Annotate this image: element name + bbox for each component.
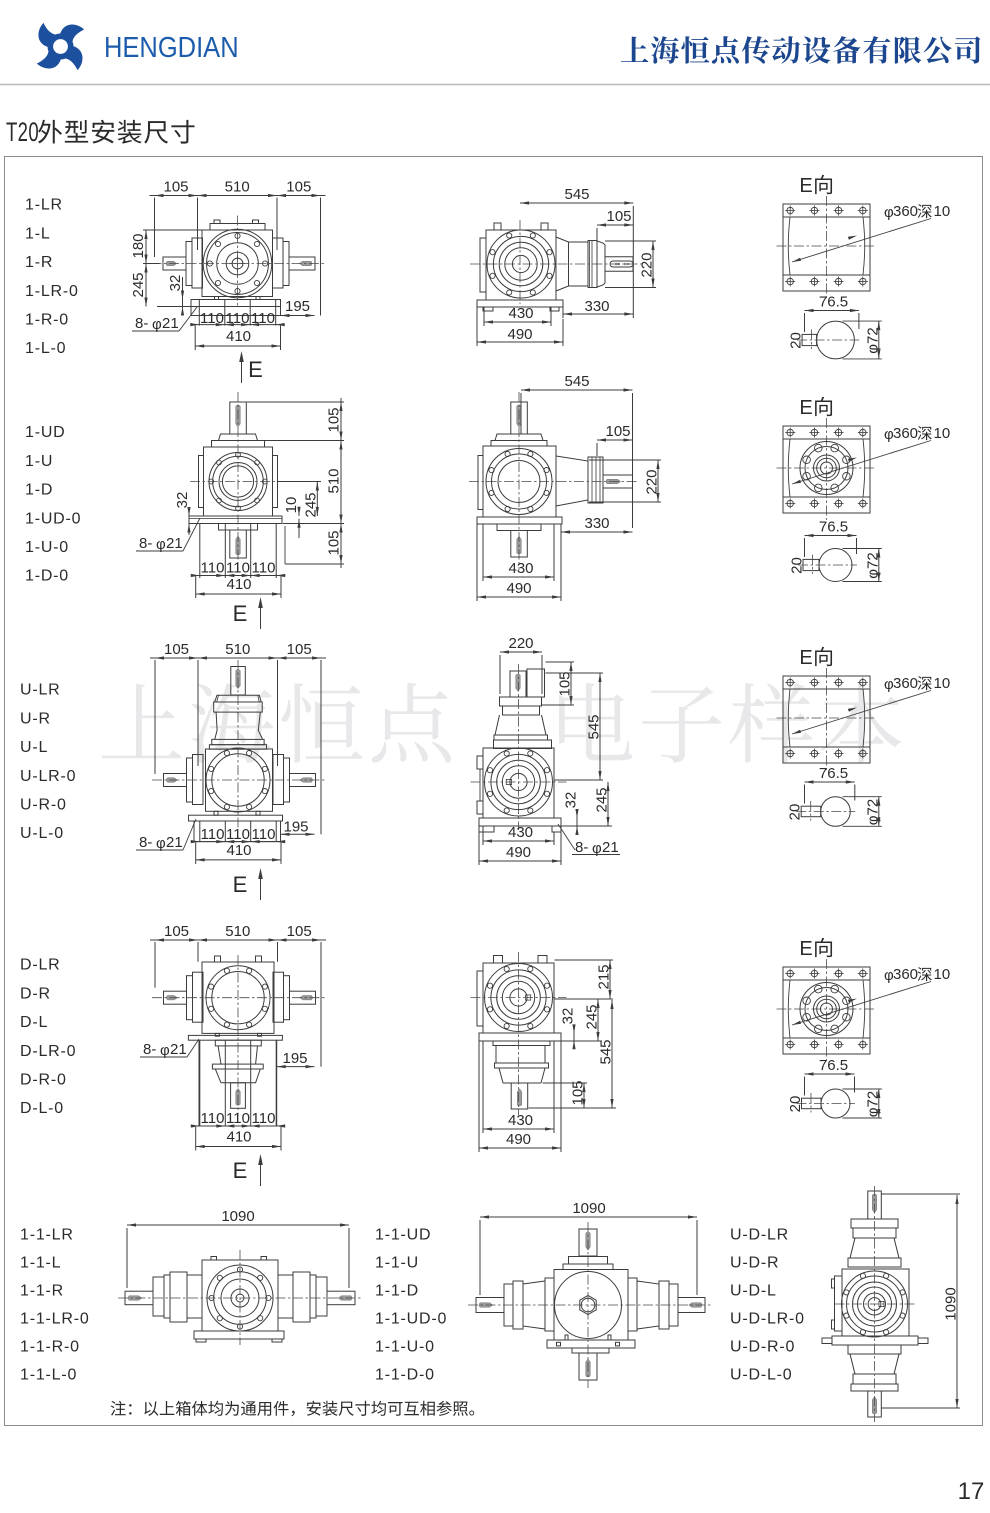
svg-text:410: 410 xyxy=(226,1129,251,1146)
svg-text:105: 105 xyxy=(326,407,343,432)
svg-text:20: 20 xyxy=(788,332,805,349)
svg-text:8-: 8- xyxy=(575,839,588,856)
svg-text:20: 20 xyxy=(789,557,806,574)
svg-text:360: 360 xyxy=(893,425,918,442)
svg-text:U-L-0: U-L-0 xyxy=(20,825,64,842)
svg-text:510: 510 xyxy=(225,179,250,196)
svg-text:D-L-0: D-L-0 xyxy=(20,1100,64,1117)
svg-text:105: 105 xyxy=(163,179,188,196)
svg-text:1-1-R: 1-1-R xyxy=(20,1283,64,1300)
svg-text:D-R: D-R xyxy=(20,986,51,1003)
svg-text:1090: 1090 xyxy=(572,1200,605,1217)
svg-text:110: 110 xyxy=(201,1110,225,1127)
svg-text:1-LR-0: 1-LR-0 xyxy=(25,283,79,300)
svg-text:105: 105 xyxy=(286,179,311,196)
svg-text:180: 180 xyxy=(130,233,147,258)
svg-text:21: 21 xyxy=(162,315,179,332)
svg-text:D-L: D-L xyxy=(20,1014,48,1031)
svg-text:410: 410 xyxy=(226,842,251,859)
svg-text:1090: 1090 xyxy=(221,1208,254,1225)
svg-text:E: E xyxy=(233,1158,248,1183)
svg-text:E: E xyxy=(799,175,812,197)
svg-text:545: 545 xyxy=(564,373,589,390)
svg-text:1-L-0: 1-L-0 xyxy=(25,340,66,357)
svg-text:490: 490 xyxy=(506,844,531,861)
svg-text:330: 330 xyxy=(584,515,609,532)
svg-text:21: 21 xyxy=(166,834,183,851)
svg-text:8-: 8- xyxy=(135,315,148,332)
svg-text:U-D-LR: U-D-LR xyxy=(730,1227,789,1244)
svg-text:1-1-LR-0: 1-1-LR-0 xyxy=(20,1311,90,1328)
svg-text:10: 10 xyxy=(934,675,951,692)
svg-text:E: E xyxy=(799,938,812,960)
svg-text:245: 245 xyxy=(303,492,320,517)
svg-text:U-D-L: U-D-L xyxy=(730,1283,777,1300)
svg-text:E: E xyxy=(799,647,812,669)
svg-text:21: 21 xyxy=(170,1041,187,1058)
svg-text:110: 110 xyxy=(252,826,276,843)
svg-text:U-LR: U-LR xyxy=(20,682,61,699)
svg-text:105: 105 xyxy=(326,530,343,555)
svg-text:32: 32 xyxy=(563,792,580,809)
svg-text:8-: 8- xyxy=(139,535,152,552)
svg-text:1-1-L: 1-1-L xyxy=(20,1255,61,1272)
svg-text:1-1-D-0: 1-1-D-0 xyxy=(375,1367,435,1384)
svg-text:490: 490 xyxy=(507,326,532,343)
svg-text:490: 490 xyxy=(506,580,531,597)
svg-text:1-U: 1-U xyxy=(25,453,53,470)
svg-text:E: E xyxy=(233,872,248,897)
svg-text:110: 110 xyxy=(252,560,276,577)
svg-text:D-LR-0: D-LR-0 xyxy=(20,1043,76,1060)
svg-text:245: 245 xyxy=(130,272,147,297)
svg-text:490: 490 xyxy=(506,1131,531,1148)
svg-text:510: 510 xyxy=(225,641,250,658)
svg-text:U-R-0: U-R-0 xyxy=(20,797,67,814)
svg-text:10: 10 xyxy=(934,203,951,220)
svg-text:110: 110 xyxy=(201,826,225,843)
svg-text:195: 195 xyxy=(282,1050,307,1067)
svg-text:20: 20 xyxy=(787,804,804,821)
svg-text:E: E xyxy=(248,357,263,382)
svg-text:φ: φ xyxy=(156,536,166,553)
svg-text:10: 10 xyxy=(934,966,951,983)
svg-text:1-D-0: 1-D-0 xyxy=(25,568,69,585)
svg-text:1-R: 1-R xyxy=(25,254,53,271)
svg-text:76.5: 76.5 xyxy=(819,765,848,782)
svg-text:430: 430 xyxy=(508,824,533,841)
svg-text:8-: 8- xyxy=(139,834,152,851)
svg-text:U-LR-0: U-LR-0 xyxy=(20,768,76,785)
svg-text:D-R-0: D-R-0 xyxy=(20,1072,67,1089)
svg-text:76.5: 76.5 xyxy=(819,1057,848,1074)
svg-text:1-LR: 1-LR xyxy=(25,197,63,214)
svg-text:410: 410 xyxy=(226,328,251,345)
svg-text:105: 105 xyxy=(606,208,631,225)
svg-text:21: 21 xyxy=(602,839,619,856)
svg-text:1-U-0: 1-U-0 xyxy=(25,539,69,556)
svg-text:105: 105 xyxy=(287,923,312,940)
svg-text:20: 20 xyxy=(787,1096,804,1113)
svg-text:1-UD: 1-UD xyxy=(25,424,66,441)
svg-text:1-1-UD: 1-1-UD xyxy=(375,1227,431,1244)
svg-text:U-D-R-0: U-D-R-0 xyxy=(730,1339,795,1356)
svg-text:195: 195 xyxy=(285,298,310,315)
svg-text:105: 105 xyxy=(164,923,189,940)
svg-text:D-LR: D-LR xyxy=(20,957,61,974)
svg-text:E: E xyxy=(799,397,812,419)
svg-text:10: 10 xyxy=(934,425,951,442)
svg-text:330: 330 xyxy=(584,298,609,315)
svg-text:1-R-0: 1-R-0 xyxy=(25,312,69,329)
svg-text:32: 32 xyxy=(167,275,184,292)
svg-text:105: 105 xyxy=(605,423,630,440)
svg-text:430: 430 xyxy=(508,560,533,577)
svg-text:110: 110 xyxy=(226,826,250,843)
svg-text:8-: 8- xyxy=(143,1041,156,1058)
svg-text:430: 430 xyxy=(508,1112,533,1129)
svg-text:U-D-R: U-D-R xyxy=(730,1255,779,1272)
svg-text:105: 105 xyxy=(164,641,189,658)
svg-text:1-L: 1-L xyxy=(25,226,51,243)
svg-text:21: 21 xyxy=(166,535,183,552)
svg-text:360: 360 xyxy=(893,203,918,220)
svg-text:110: 110 xyxy=(226,560,250,577)
svg-text:1-1-D: 1-1-D xyxy=(375,1283,419,1300)
svg-text:U-R: U-R xyxy=(20,711,51,728)
svg-text:1-1-LR: 1-1-LR xyxy=(20,1227,74,1244)
svg-text:110: 110 xyxy=(201,560,225,577)
svg-text:32: 32 xyxy=(174,492,191,509)
svg-text:76.5: 76.5 xyxy=(819,518,848,535)
svg-text:U-D-LR-0: U-D-LR-0 xyxy=(730,1311,805,1328)
svg-text:φ: φ xyxy=(160,1042,170,1059)
svg-text:1-1-L-0: 1-1-L-0 xyxy=(20,1367,77,1384)
svg-text:U-D-L-0: U-D-L-0 xyxy=(730,1367,793,1384)
svg-text:510: 510 xyxy=(326,468,343,493)
svg-text:1-1-U: 1-1-U xyxy=(375,1255,419,1272)
svg-text:110: 110 xyxy=(252,1110,276,1127)
svg-text:1-1-U-0: 1-1-U-0 xyxy=(375,1339,435,1356)
svg-text:φ: φ xyxy=(152,316,162,333)
svg-text:510: 510 xyxy=(225,923,250,940)
svg-text:32: 32 xyxy=(560,1008,577,1025)
svg-text:1-UD-0: 1-UD-0 xyxy=(25,511,81,528)
svg-text:110: 110 xyxy=(226,1110,250,1127)
svg-text:410: 410 xyxy=(226,576,251,593)
svg-text:195: 195 xyxy=(283,819,308,836)
svg-text:1-1-UD-0: 1-1-UD-0 xyxy=(375,1311,447,1328)
svg-text:10: 10 xyxy=(283,497,300,514)
svg-text:545: 545 xyxy=(564,186,589,203)
svg-text:T20: T20 xyxy=(6,117,39,147)
svg-text:E: E xyxy=(233,601,248,626)
svg-text:φ: φ xyxy=(156,835,166,852)
svg-text:1-D: 1-D xyxy=(25,482,53,499)
svg-text:430: 430 xyxy=(508,305,533,322)
svg-text:U-L: U-L xyxy=(20,739,48,756)
svg-text:1-1-R-0: 1-1-R-0 xyxy=(20,1339,80,1356)
svg-text:HENGDIAN: HENGDIAN xyxy=(104,30,239,63)
svg-text:76.5: 76.5 xyxy=(819,293,848,310)
svg-text:360: 360 xyxy=(893,966,918,983)
svg-text:360: 360 xyxy=(893,675,918,692)
svg-text:17: 17 xyxy=(958,1478,985,1505)
svg-text:220: 220 xyxy=(508,635,533,652)
svg-text:105: 105 xyxy=(287,641,312,658)
